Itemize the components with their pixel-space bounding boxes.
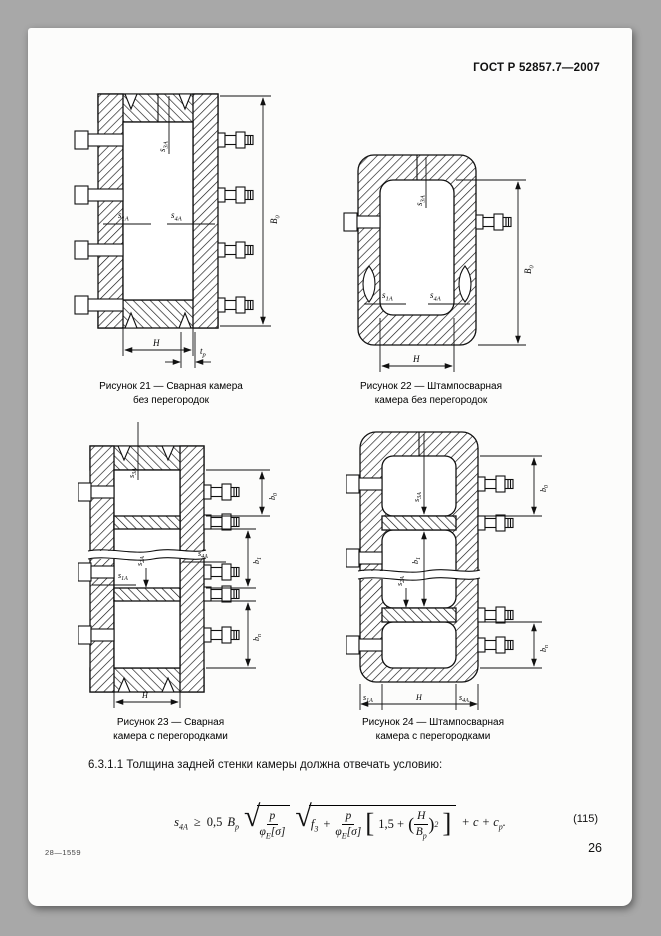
formula-lhs: s4А: [174, 815, 188, 830]
radical-sign: √: [244, 802, 260, 832]
formula-expression: s4А ≥ 0,5 Bр √ p φЕ[σ] √ f3 +: [174, 805, 506, 839]
formula-B: Bр: [227, 815, 239, 830]
print-run-code: 28—1559: [45, 848, 81, 857]
label-s4a: s4А: [459, 693, 469, 704]
paren-fraction: ( H Bр ) 2: [408, 810, 438, 839]
document-page: ГОСТ Р 52857.7—2007 s3А s1А s4А B0 H: [28, 28, 632, 906]
label-h: H: [415, 693, 423, 702]
label-h: H: [412, 354, 420, 364]
page-number: 26: [588, 841, 602, 855]
label-b0: b0: [539, 485, 548, 492]
equation-115: s4А ≥ 0,5 Bр √ p φЕ[σ] √ f3 +: [78, 786, 602, 858]
label-b0-dim: B0: [523, 265, 535, 275]
radical-2: √ f3 + p φЕ[σ] [ 1,5 + ( H Bр: [295, 805, 456, 839]
equation-number: (115): [573, 813, 598, 825]
page-title: ГОСТ Р 52857.7—2007: [473, 62, 600, 74]
label-s1a: s1А: [363, 693, 373, 704]
label-bn: bn: [539, 645, 548, 652]
scanned-gost-page-background: { "page": { "header": "ГОСТ Р 52857.7—20…: [0, 0, 661, 936]
right-bracket: ]: [442, 813, 451, 835]
label-b1: b1: [252, 557, 263, 564]
left-bracket: [: [365, 813, 374, 835]
label-tp: tр: [200, 346, 207, 359]
radical-1: √ p φЕ[σ]: [244, 805, 290, 839]
figure-21-drawing: s3А s1А s4А B0 H tр: [73, 88, 281, 374]
figure-24-caption: Рисунок 24 — Штампосварнаякамера с перег…: [313, 716, 553, 744]
figure-23-drawing: s3А b0 s4А s1А s2А b1 bn H: [78, 420, 278, 712]
formula-f: f3: [311, 817, 318, 832]
label-h: H: [152, 338, 160, 348]
section-6311-text: 6.3.1.1 Толщина задней стенки камеры дол…: [88, 759, 442, 771]
radical-sign: √: [295, 802, 311, 832]
figure-22-drawing: s3А s1А s4А B0 H: [340, 150, 535, 378]
figure-24-drawing: s3А b0 b1 s2А bn s1А H s4А: [346, 418, 548, 716]
figure-21-caption: Рисунок 21 — Сварная камерабез перегород…: [56, 380, 286, 408]
label-b0-dim: B0: [269, 215, 281, 225]
figure-23-caption: Рисунок 23 — Сварнаякамера с перегородка…: [58, 716, 283, 744]
label-bn: bn: [252, 634, 263, 641]
formula-tail: + c + cр.: [461, 815, 505, 830]
label-b0: b0: [268, 493, 278, 500]
figure-22-caption: Рисунок 22 — Штампосварнаякамера без пер…: [316, 380, 546, 408]
